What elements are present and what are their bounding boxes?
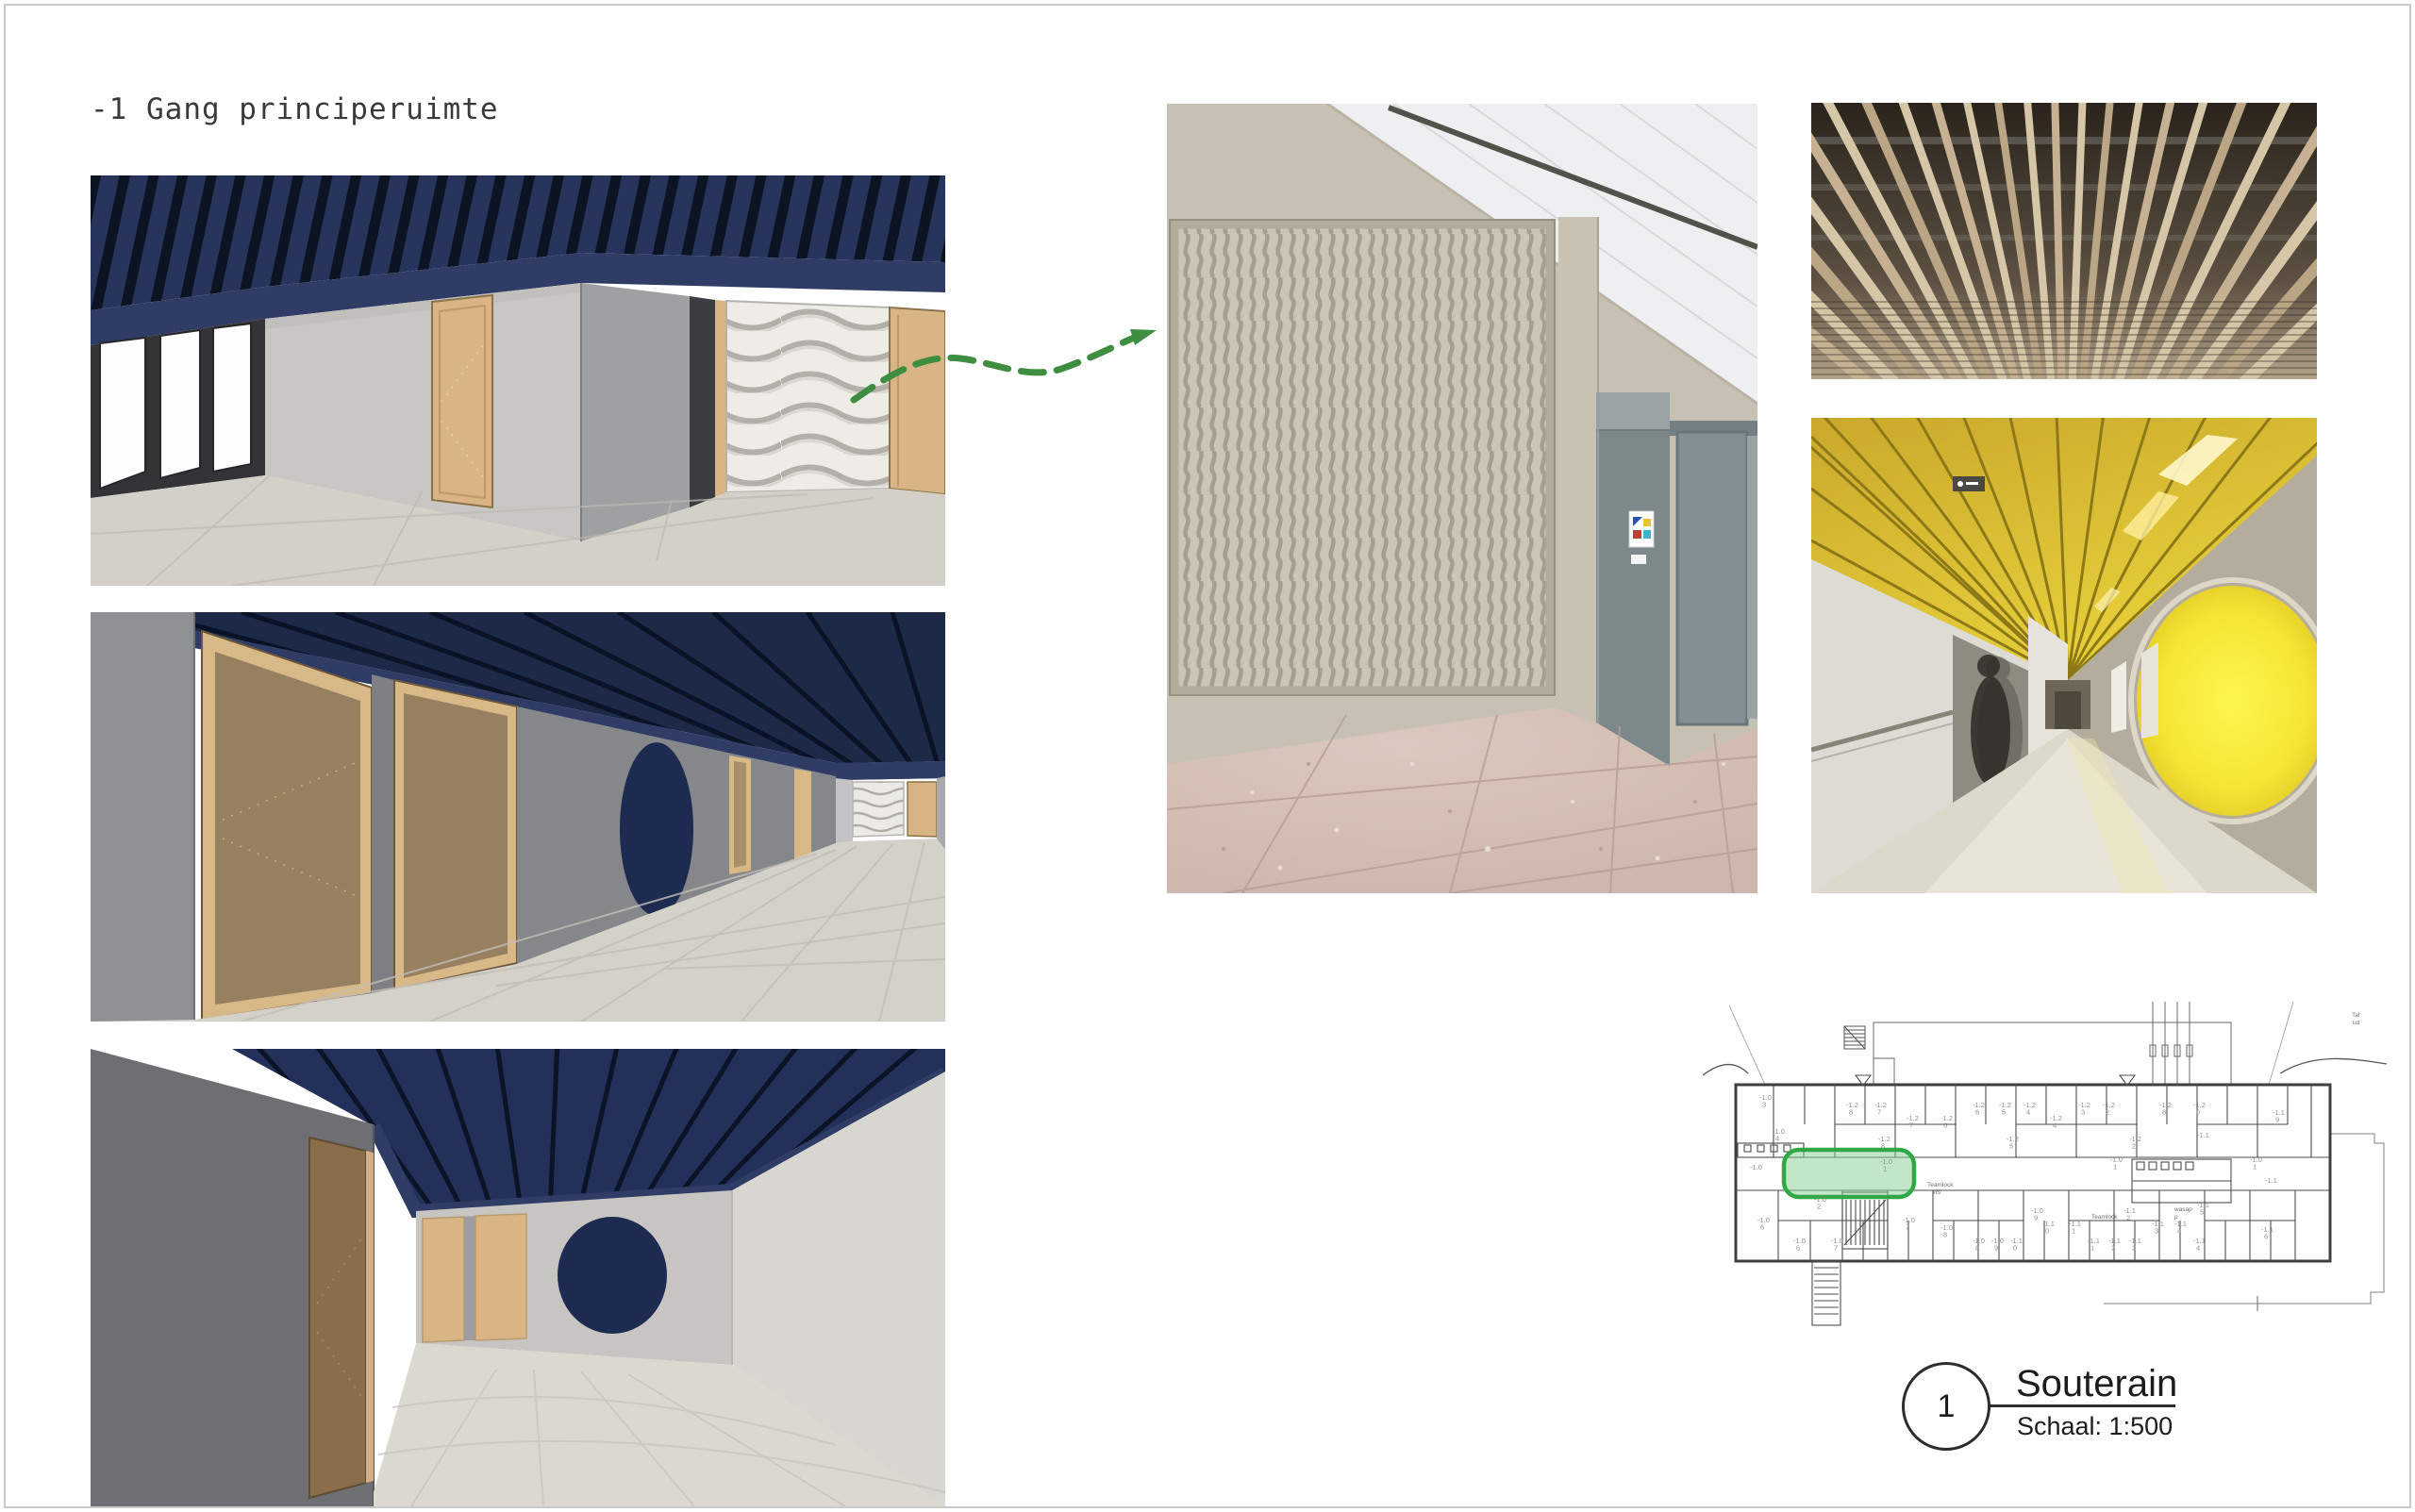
reference-arrow-icon <box>821 302 1179 424</box>
floor-plan-souterrain: -1.03-1.04-1.28-1.27-1.27-1.26-1.28-1.26… <box>1703 1002 2387 1366</box>
drawing-title: Souterain <box>2016 1363 2177 1405</box>
photo-yellow-corridor-round-window <box>1811 418 2317 893</box>
svg-text:Tal: Tal <box>2352 1012 2360 1019</box>
render-corridor-entrance-with-wave-panel <box>91 175 945 586</box>
svg-text:wasap: wasap <box>2173 1206 2192 1213</box>
drawing-number-badge: 1 <box>1902 1362 1990 1451</box>
svg-text:Teamlock: Teamlock <box>2091 1214 2118 1221</box>
svg-text:-1.0: -1.0 <box>1750 1163 1762 1171</box>
render-corridor-doors-and-navy-circle <box>91 612 945 1022</box>
svg-text:-1.1: -1.1 <box>2265 1176 2277 1185</box>
svg-text:Teamlock: Teamlock <box>1927 1182 1954 1188</box>
drawing-number: 1 <box>1938 1388 1956 1425</box>
presentation-page: -1 Gang principeruimte <box>0 0 2415 1512</box>
render-corridor-end-navy-circle <box>91 1049 945 1506</box>
photo-wood-slat-ceiling <box>1811 103 2317 379</box>
drawing-scale: Schaal: 1:500 <box>2017 1412 2173 1441</box>
page-title: -1 Gang principeruimte <box>91 92 499 126</box>
svg-text:p: p <box>2174 1214 2178 1221</box>
plan-highlight-corridor <box>1784 1150 1914 1197</box>
svg-text:-1.1: -1.1 <box>2197 1131 2209 1139</box>
photo-textured-concrete-wall-elevator <box>1167 104 1757 893</box>
svg-text:ud: ud <box>2353 1020 2360 1026</box>
svg-text:ers: ers <box>1932 1189 1941 1196</box>
